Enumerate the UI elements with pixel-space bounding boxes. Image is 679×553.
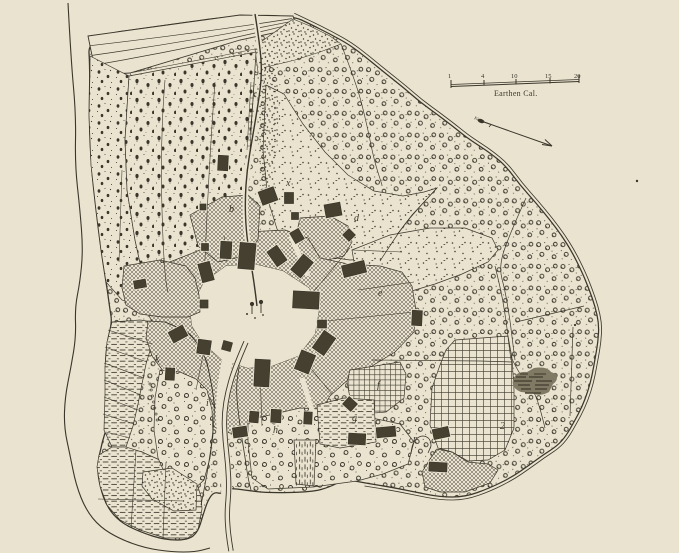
svg-text:x: x <box>285 178 291 189</box>
svg-text:15: 15 <box>545 73 552 80</box>
svg-text:2: 2 <box>500 421 505 432</box>
svg-text:i: i <box>206 398 209 409</box>
svg-text:20: 20 <box>574 73 581 80</box>
svg-text:r: r <box>413 434 417 445</box>
svg-text:Earthen Cal.: Earthen Cal. <box>494 89 538 98</box>
svg-text:g: g <box>352 413 357 424</box>
svg-text:e: e <box>378 288 383 299</box>
svg-text:10: 10 <box>511 73 518 80</box>
svg-text:h: h <box>273 425 278 436</box>
svg-text:1: 1 <box>448 73 451 80</box>
svg-text:b: b <box>229 204 234 215</box>
svg-text:k: k <box>155 354 160 365</box>
svg-text:a: a <box>160 255 165 266</box>
